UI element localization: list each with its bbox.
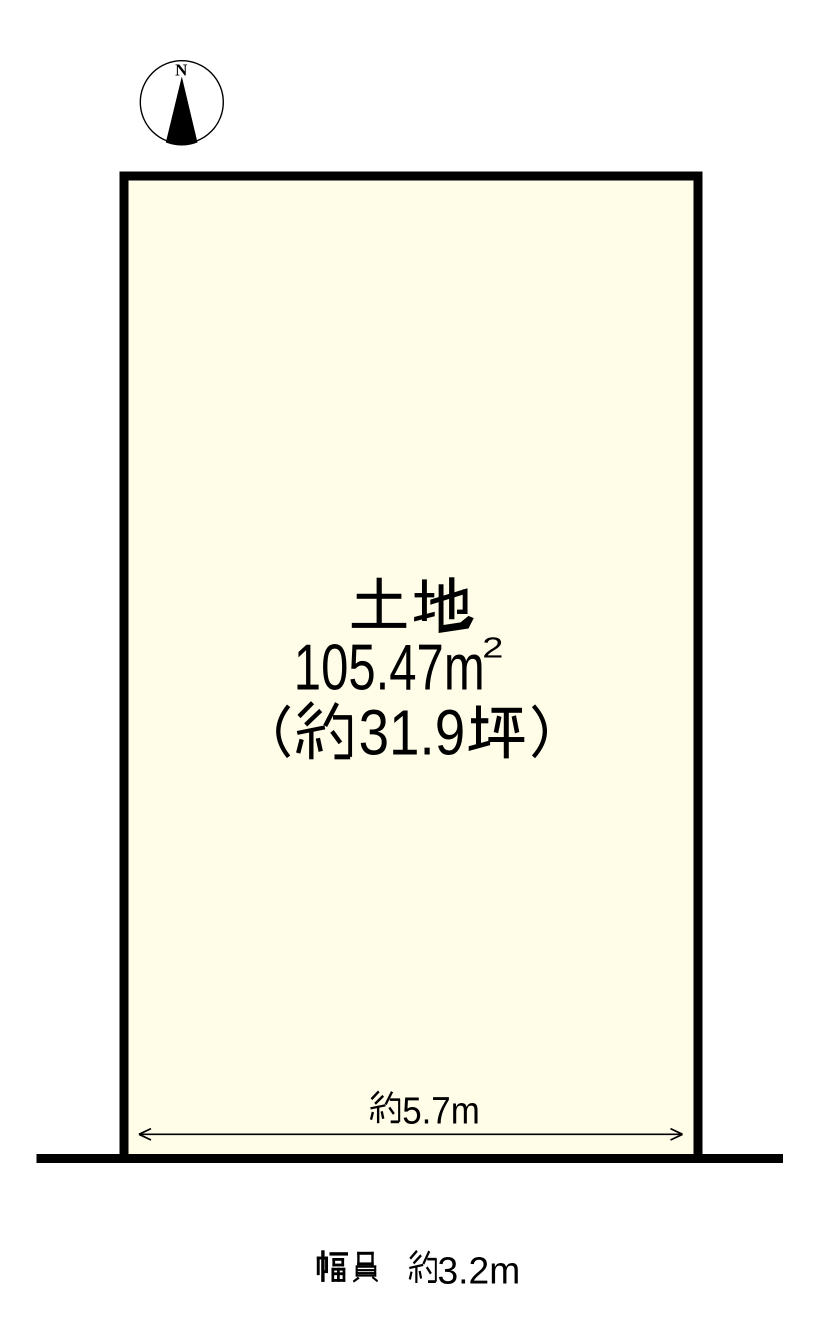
svg-text:3.2m: 3.2m [438, 1251, 521, 1293]
svg-text:N: N [175, 61, 188, 80]
svg-text:105.47m: 105.47m [294, 630, 485, 703]
svg-text:31.9: 31.9 [359, 697, 466, 769]
svg-text:2: 2 [482, 633, 503, 664]
svg-text:5.7m: 5.7m [402, 1090, 480, 1132]
